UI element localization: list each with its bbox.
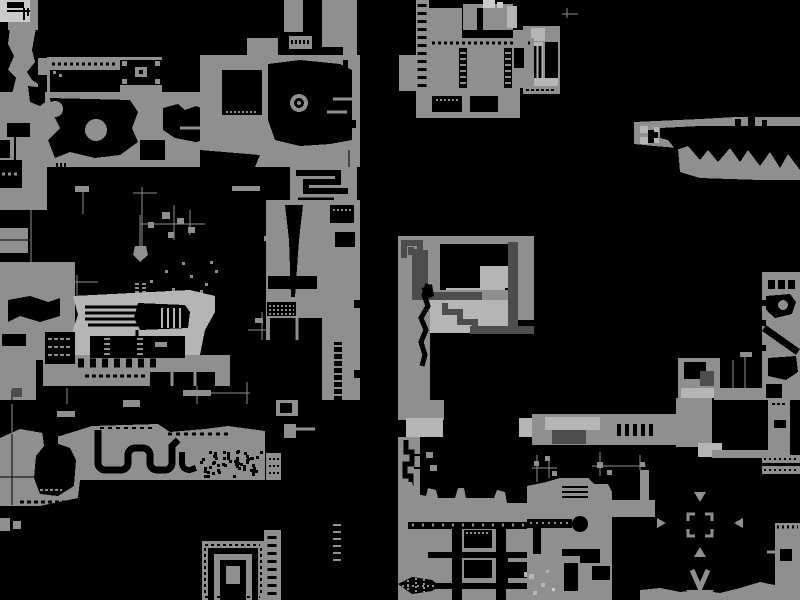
speckle — [223, 451, 226, 454]
map-terrain — [57, 411, 75, 417]
map-terrain — [7, 123, 30, 137]
speckle — [250, 469, 253, 472]
map-terrain — [452, 529, 462, 553]
map-terrain — [432, 96, 462, 112]
map-terrain — [264, 236, 276, 241]
speckle — [244, 452, 247, 455]
map-terrain — [122, 61, 127, 66]
map-terrain — [343, 60, 348, 68]
speckle — [233, 475, 236, 478]
map-terrain — [496, 589, 506, 600]
speckle — [227, 454, 230, 457]
speckle — [215, 457, 218, 460]
map-terrain — [480, 266, 512, 288]
map-terrain — [7, 2, 24, 8]
eye-orb-pupil — [297, 101, 301, 105]
speckle — [250, 457, 253, 460]
map-terrain — [150, 280, 153, 283]
map-terrain — [334, 465, 351, 479]
map-terrain — [774, 420, 786, 428]
map-terrain — [597, 462, 603, 468]
speckle — [214, 452, 217, 455]
map-terrain — [150, 372, 215, 386]
map-terrain — [768, 280, 775, 289]
map-terrain — [139, 70, 143, 74]
map-terrain — [330, 430, 347, 444]
constellation-node — [162, 212, 170, 219]
map-terrain — [335, 232, 355, 247]
map-terrain — [681, 388, 715, 398]
map-terrain — [330, 205, 354, 223]
speckle — [252, 473, 255, 476]
speckle — [207, 471, 210, 474]
map-terrain — [513, 30, 525, 46]
speckle — [240, 463, 243, 466]
map-terrain — [284, 424, 296, 438]
map-terrain — [75, 186, 89, 192]
map-terrain — [640, 470, 649, 500]
map-terrain — [477, 8, 483, 30]
knob — [47, 101, 63, 117]
map-terrain — [177, 218, 184, 224]
map-terrain — [778, 280, 785, 289]
map-terrain — [762, 300, 766, 306]
speckle — [217, 464, 220, 467]
map-terrain — [452, 589, 462, 600]
map-terrain — [778, 300, 788, 310]
map-terrain — [294, 62, 300, 74]
map-terrain — [406, 418, 443, 437]
map-terrain — [714, 388, 770, 400]
speckle — [207, 475, 210, 478]
map-terrain — [496, 558, 508, 584]
map-terrain — [332, 520, 342, 565]
map-terrain — [13, 521, 21, 529]
map-terrain — [210, 261, 213, 264]
map-terrain — [470, 96, 498, 112]
speckle — [212, 472, 215, 475]
speckle — [222, 463, 225, 466]
speckle — [256, 456, 259, 459]
map-terrain — [788, 280, 795, 289]
map-terrain — [552, 588, 555, 591]
map-terrain — [507, 6, 517, 28]
map-terrain — [533, 528, 541, 554]
map-terrain — [529, 574, 534, 579]
map-terrain — [546, 570, 549, 573]
map-terrain — [255, 318, 263, 323]
map-terrain — [428, 552, 534, 558]
map-terrain — [30, 0, 38, 30]
map-terrain — [541, 583, 545, 587]
speckle — [229, 460, 232, 463]
speckle — [236, 451, 239, 454]
map-terrain — [676, 398, 712, 447]
speckle — [246, 459, 249, 462]
map-terrain — [2, 334, 26, 346]
map-terrain — [519, 418, 534, 437]
speckle — [252, 464, 255, 467]
map-terrain — [740, 352, 752, 357]
map-terrain — [408, 522, 534, 529]
map-terrain — [59, 74, 62, 77]
speckle — [227, 457, 230, 460]
speckle — [209, 451, 212, 454]
map-terrain — [640, 137, 648, 144]
speckle — [217, 469, 220, 472]
game-map-screen — [0, 0, 800, 600]
map-terrain — [780, 549, 792, 561]
speckle — [260, 451, 263, 454]
speckle — [200, 461, 203, 464]
map-terrain — [123, 400, 140, 407]
map-terrain — [172, 288, 175, 291]
top-mid-complex — [399, 55, 417, 91]
map-terrain — [148, 222, 154, 228]
speckle — [236, 459, 239, 462]
map-terrain — [533, 591, 537, 595]
map-terrain — [85, 119, 107, 141]
map-terrain — [552, 430, 586, 444]
map-terrain — [140, 140, 165, 160]
map-terrain — [607, 470, 612, 475]
map-terrain — [712, 450, 770, 458]
speckle — [255, 470, 258, 473]
map-terrain — [12, 388, 22, 397]
map-terrain — [508, 242, 518, 333]
map-terrain — [122, 79, 127, 84]
map-terrain — [53, 71, 56, 74]
speckle — [223, 457, 226, 460]
map-terrain — [497, 2, 503, 8]
map-terrain — [50, 70, 120, 95]
map-terrain — [654, 127, 659, 132]
map-terrain — [247, 38, 278, 62]
map-terrain — [592, 566, 610, 580]
speckle — [238, 467, 241, 470]
map-terrain — [354, 300, 360, 308]
map-terrain — [226, 566, 240, 584]
map-terrain — [296, 173, 348, 191]
map-terrain — [268, 276, 317, 289]
map-terrain — [496, 529, 506, 553]
map-terrain — [353, 500, 360, 508]
round-hole — [572, 516, 588, 532]
speckle — [243, 468, 246, 471]
map-terrain — [552, 471, 557, 476]
world-map[interactable] — [0, 0, 800, 600]
speckle — [243, 465, 246, 468]
map-terrain — [640, 462, 645, 467]
map-terrain — [334, 342, 342, 400]
map-terrain — [165, 270, 168, 273]
map-terrain — [470, 326, 534, 334]
map-terrain — [748, 117, 755, 127]
map-terrain — [464, 560, 492, 578]
map-terrain — [350, 120, 356, 128]
map-terrain — [516, 236, 534, 320]
map-terrain — [436, 583, 534, 589]
speckle — [209, 466, 212, 469]
map-terrain — [0, 140, 10, 158]
map-terrain — [182, 262, 185, 265]
map-terrain — [762, 345, 766, 351]
map-terrain — [188, 227, 195, 233]
map-terrain — [654, 138, 659, 143]
speckle — [202, 458, 205, 461]
map-terrain — [284, 0, 303, 32]
map-terrain — [545, 456, 550, 461]
speckle — [253, 467, 256, 470]
bracket-corner — [640, 126, 648, 133]
ladder-shaft — [264, 530, 281, 600]
map-terrain — [428, 8, 462, 42]
map-terrain — [183, 390, 211, 396]
map-terrain — [232, 186, 260, 191]
speckle — [204, 470, 207, 473]
map-terrain — [416, 88, 520, 118]
map-terrain — [155, 79, 160, 84]
map-terrain — [222, 70, 262, 115]
map-terrain — [280, 403, 292, 413]
map-terrain — [205, 283, 208, 286]
map-terrain — [700, 371, 714, 386]
map-terrain — [215, 270, 218, 273]
map-terrain — [354, 370, 360, 378]
big-black-room — [712, 400, 768, 450]
map-terrain — [155, 61, 160, 66]
map-terrain — [398, 400, 444, 420]
map-terrain — [762, 320, 766, 326]
map-terrain — [564, 563, 578, 591]
map-terrain — [545, 42, 558, 78]
map-terrain — [0, 518, 10, 531]
map-terrain — [514, 48, 524, 68]
map-terrain — [426, 452, 433, 458]
map-terrain — [534, 461, 539, 466]
speckle — [204, 475, 207, 478]
speckle — [246, 455, 249, 458]
map-terrain — [545, 417, 600, 430]
map-terrain — [463, 30, 513, 38]
map-terrain — [452, 558, 462, 584]
map-terrain — [322, 0, 356, 47]
map-terrain — [430, 465, 437, 471]
map-terrain — [168, 232, 174, 238]
map-terrain — [483, 0, 495, 8]
map-terrain — [762, 120, 767, 127]
map-terrain — [190, 275, 193, 278]
map-terrain — [268, 60, 352, 146]
speckle — [213, 461, 216, 464]
map-terrain — [775, 523, 800, 600]
speckle — [204, 467, 207, 470]
map-terrain — [155, 342, 167, 347]
map-terrain — [735, 119, 741, 127]
map-terrain — [766, 384, 782, 398]
